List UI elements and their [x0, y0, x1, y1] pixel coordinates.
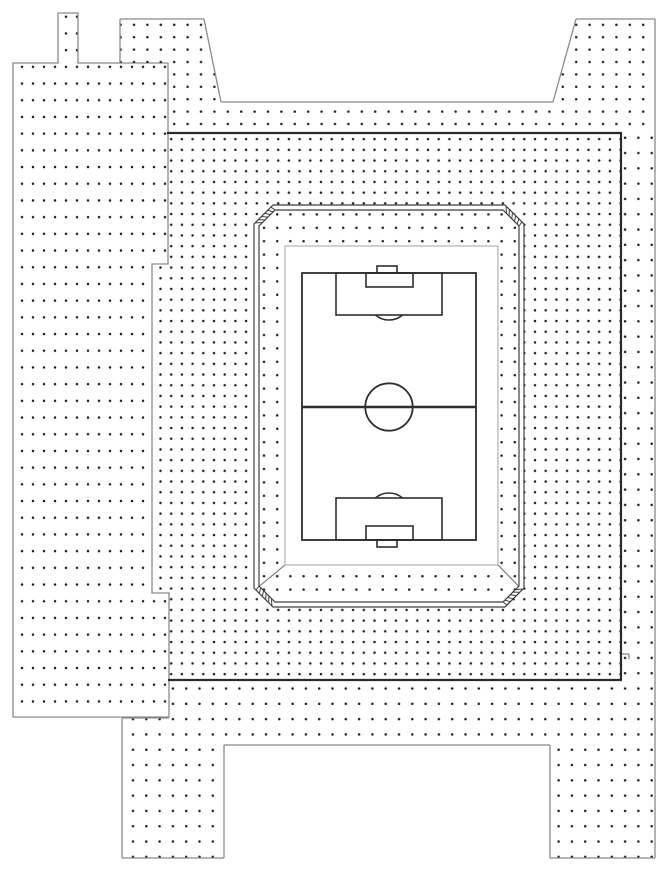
wall-hatch-tick: [265, 213, 271, 214]
wall-hatch-tick: [514, 216, 515, 222]
wall-hatch-tick: [505, 600, 510, 602]
site-plan-svg: [0, 0, 666, 879]
wall-hatch-tick: [503, 602, 507, 605]
wall-hatch-tick: [261, 217, 267, 218]
field-surround: [285, 246, 498, 565]
wall-hatch-tick: [510, 595, 516, 596]
wall-hatch-tick: [271, 207, 275, 210]
left-terrace-zone: [13, 13, 169, 717]
wall-hatch-tick: [512, 212, 513, 218]
top-terrace-zone: [120, 19, 655, 133]
site-plan: [0, 0, 666, 879]
wall-hatch-tick: [262, 591, 263, 597]
football-pitch: [285, 246, 498, 565]
wall-hatch-tick: [268, 210, 273, 212]
wall-hatch-tick: [519, 222, 522, 226]
wall-hatch-tick: [517, 219, 519, 224]
wall-hatch-tick: [256, 586, 259, 590]
wall-hatch-tick: [266, 593, 267, 599]
wall-hatch-tick: [508, 597, 514, 598]
wall-hatch-tick: [259, 588, 261, 593]
